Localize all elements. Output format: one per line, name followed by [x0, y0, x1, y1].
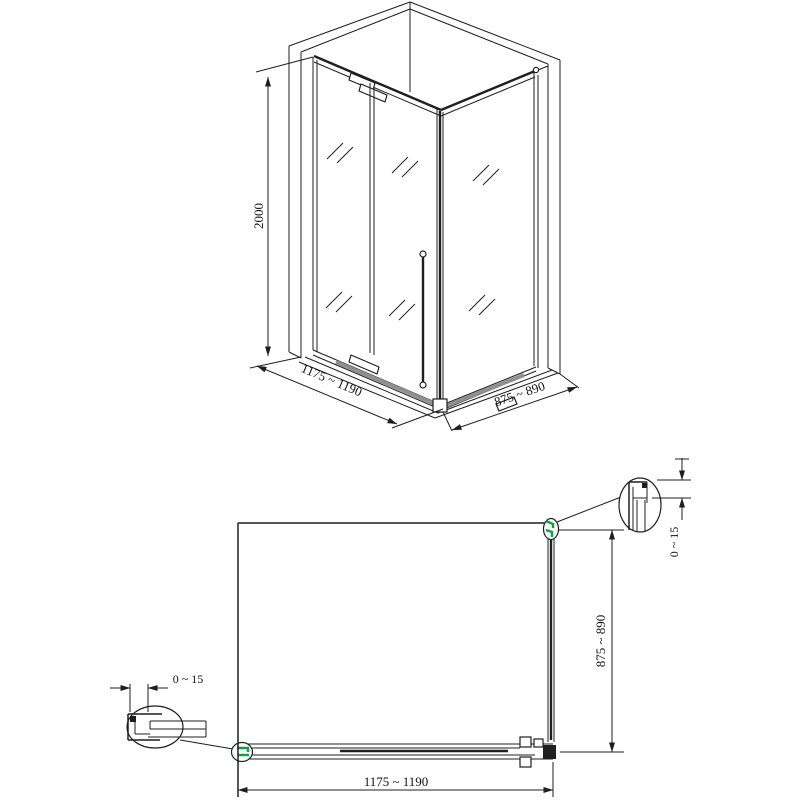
- isometric-view: 2000 1175 ~ 1190 875 ~ 890: [250, 2, 579, 431]
- handle-knob-bottom: [420, 382, 426, 388]
- iso-height-label: 2000: [251, 203, 266, 229]
- door-handle-plan-bottom: [520, 757, 531, 767]
- right-gap-label: 0 ~ 15: [667, 527, 681, 558]
- iso-depth-dimension: 875 ~ 890: [443, 374, 579, 431]
- leader-line: [180, 740, 233, 749]
- plan-view: 875 ~ 890 1175 ~ 1190: [110, 458, 691, 797]
- top-frame-bars: [314, 56, 548, 116]
- left-gap-label: 0 ~ 15: [173, 672, 204, 686]
- plan-door-assembly: [246, 737, 556, 767]
- plan-outline: [238, 523, 545, 797]
- handle-knob-top: [420, 251, 426, 257]
- technical-drawing-page: 2000 1175 ~ 1190 875 ~ 890: [0, 0, 800, 800]
- plan-width-dimension: 1175 ~ 1190: [238, 762, 553, 797]
- iso-width-label: 1175 ~ 1190: [299, 360, 364, 399]
- door-handle: [420, 251, 426, 388]
- plan-depth-dimension: 875 ~ 890: [558, 530, 624, 752]
- detail-marker-ellipse: [232, 743, 253, 762]
- plan-depth-label: 875 ~ 890: [593, 615, 608, 668]
- plan-side-panel: [548, 536, 554, 742]
- shower-enclosure-drawing: 2000 1175 ~ 1190 875 ~ 890: [0, 0, 800, 800]
- leader-line: [557, 497, 621, 522]
- plan-width-label: 1175 ~ 1190: [364, 774, 429, 789]
- detail-circle: [619, 478, 661, 532]
- corner-profile: [543, 745, 556, 759]
- detail-callout-bottom-left: 0 ~ 15: [110, 672, 253, 762]
- door-handle-plan-top: [520, 737, 531, 747]
- wall-left: [289, 2, 410, 358]
- detail-callout-top-right: 0 ~ 15: [544, 458, 692, 557]
- glass-hatch-marks: [326, 143, 499, 320]
- bar-end-cap: [533, 67, 538, 72]
- door-hinges-top: [349, 73, 387, 102]
- iso-height-dimension: 2000: [250, 57, 313, 368]
- panel-clamp: [534, 739, 543, 747]
